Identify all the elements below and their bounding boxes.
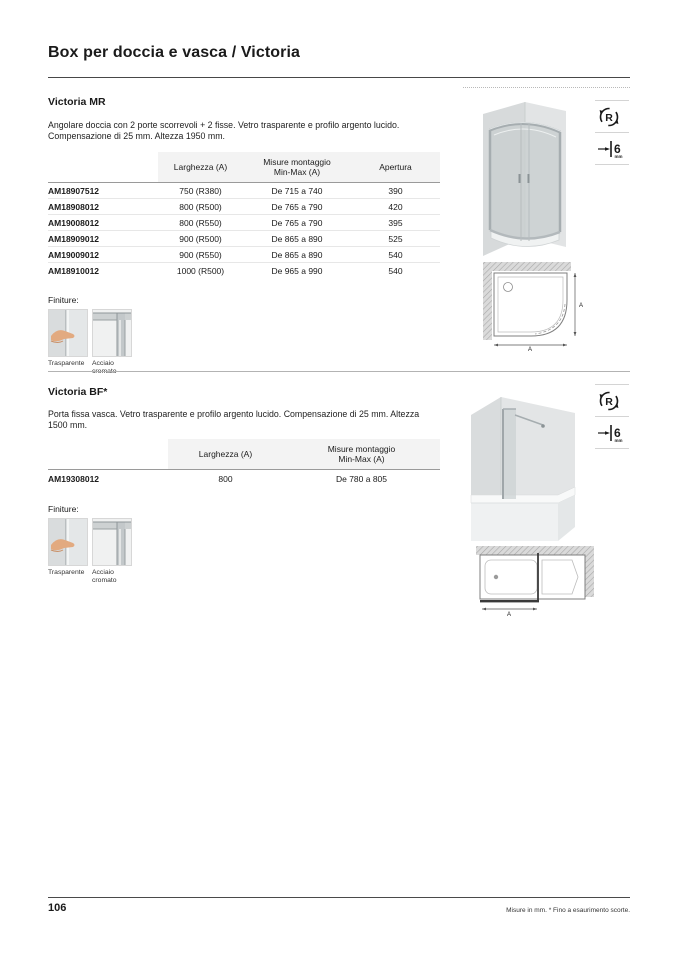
finish-item-trasparente: Trasparente	[48, 309, 88, 375]
cell-larghezza: 900 (R550)	[158, 250, 243, 260]
page-number: 106	[48, 902, 66, 914]
product-photo-victoria-mr	[463, 90, 585, 261]
title-divider	[48, 77, 630, 78]
cell-misure: De 780 a 805	[283, 474, 440, 484]
dim-label-width: A	[528, 347, 532, 352]
reversible-icon: R	[597, 389, 621, 413]
finishes-block: Finiture: Trasparente	[48, 504, 440, 584]
section-heading: Victoria MR	[48, 96, 440, 108]
cell-apertura: 525	[351, 234, 440, 244]
cell-product-code: AM19009012	[48, 250, 158, 260]
reversible-badge: R	[595, 101, 631, 132]
finishes-block: Finiture: Trasparente	[48, 295, 440, 375]
footer-divider	[48, 897, 630, 898]
schematic-bathtub-top-view: A	[468, 544, 602, 623]
header-cell-larghezza: Larghezza (A)	[158, 152, 243, 182]
reversible-badge: R	[595, 385, 631, 416]
table-row: AM19308012 800 De 780 a 805	[48, 470, 440, 487]
finish-swatch-trasparente-image	[48, 309, 88, 357]
glass-thickness-icon: 6 mm	[597, 137, 629, 161]
products-table-victoria-mr: Larghezza (A) Misure montaggio Min-Max (…	[48, 152, 440, 278]
cell-product-code: AM19008012	[48, 218, 158, 228]
header-cell-apertura: Apertura	[351, 152, 440, 182]
cell-apertura: 390	[351, 186, 440, 196]
finish-name: Trasparente	[48, 360, 88, 368]
cell-product-code: AM18909012	[48, 234, 158, 244]
table-row: AM18908012 800 (R500) De 765 a 790 420	[48, 199, 440, 215]
catalog-page: Box per doccia e vasca / Victoria Victor…	[0, 0, 678, 959]
feature-badges-victoria-mr: R 6 mm	[595, 100, 631, 165]
svg-text:R: R	[605, 395, 613, 407]
table-row: AM19008012 800 (R550) De 765 a 790 395	[48, 215, 440, 231]
products-table-victoria-bf: Larghezza (A) Misure montaggio Min-Max (…	[48, 439, 440, 487]
table-row: AM19009012 900 (R550) De 865 a 890 540	[48, 247, 440, 263]
cell-product-code: AM18908012	[48, 202, 158, 212]
cell-apertura: 540	[351, 266, 440, 276]
section-divider	[48, 371, 630, 372]
table-header-row: Larghezza (A) Misure montaggio Min-Max (…	[48, 439, 440, 469]
cell-larghezza: 750 (R380)	[158, 186, 243, 196]
cell-apertura: 420	[351, 202, 440, 212]
table-row: AM18909012 900 (R500) De 865 a 890 525	[48, 231, 440, 247]
finish-item-acciaio-cromato: Acciaio cromato	[92, 518, 132, 584]
footer-note: Misure in mm. * Fino a esaurimento scort…	[506, 907, 630, 914]
section-description-line1: Porta fissa vasca. Vetro trasparente e p…	[48, 409, 440, 431]
table-row: AM18907512 750 (R380) De 715 a 740 390	[48, 183, 440, 199]
svg-text:mm: mm	[615, 438, 623, 443]
cell-misure: De 765 a 790	[243, 218, 351, 228]
section-victoria-mr: Victoria MR Angolare doccia con 2 porte …	[48, 96, 440, 375]
badge-divider	[595, 164, 629, 165]
table-row: AM18910012 1000 (R500) De 965 a 990 540	[48, 263, 440, 278]
table-header-row: Larghezza (A) Misure montaggio Min-Max (…	[48, 152, 440, 182]
schematic-tray-top-view: A A	[481, 260, 585, 357]
cell-misure: De 865 a 890	[243, 234, 351, 244]
page-title: Box per doccia e vasca / Victoria	[48, 44, 630, 62]
section-description-line1: Angolare doccia con 2 porte scorrevoli +…	[48, 120, 440, 131]
glass-thickness-icon: 6 mm	[597, 421, 629, 445]
dim-label-height: A	[579, 303, 583, 309]
cell-misure: De 715 a 740	[243, 186, 351, 196]
section-heading: Victoria BF*	[48, 386, 440, 398]
finish-item-trasparente: Trasparente	[48, 518, 88, 584]
section-victoria-bf: Victoria BF* Porta fissa vasca. Vetro tr…	[48, 386, 440, 584]
finish-swatch-trasparente-image	[48, 518, 88, 566]
cell-apertura: 395	[351, 218, 440, 228]
glass-thickness-badge: 6 mm	[595, 417, 631, 448]
product-photo-victoria-bf	[463, 385, 585, 550]
cell-apertura: 540	[351, 250, 440, 260]
badge-divider	[595, 448, 629, 449]
finish-swatch-acciaio-image	[92, 518, 132, 566]
cell-larghezza: 800 (R550)	[158, 218, 243, 228]
svg-text:R: R	[605, 111, 613, 123]
cell-product-code: AM18910012	[48, 266, 158, 276]
cell-misure: De 765 a 790	[243, 202, 351, 212]
finish-name: Trasparente	[48, 569, 88, 577]
cell-larghezza: 800 (R500)	[158, 202, 243, 212]
finish-name: Acciaio cromato	[92, 569, 132, 584]
section-description-line2: Compensazione di 25 mm. Altezza 1950 mm.	[48, 131, 440, 142]
cell-product-code: AM19308012	[48, 474, 168, 484]
finish-name: Acciaio cromato	[92, 360, 132, 375]
cell-larghezza: 800	[168, 474, 283, 484]
reversible-icon: R	[597, 105, 621, 129]
header-cell-larghezza: Larghezza (A)	[168, 439, 283, 469]
finishes-label: Finiture:	[48, 295, 440, 305]
finish-swatch-acciaio-image	[92, 309, 132, 357]
finishes-label: Finiture:	[48, 504, 440, 514]
feature-badges-victoria-bf: R 6 mm	[595, 384, 631, 449]
finish-item-acciaio-cromato: Acciaio cromato	[92, 309, 132, 375]
header-cell-misure: Misure montaggio Min-Max (A)	[283, 439, 440, 469]
cell-misure: De 965 a 990	[243, 266, 351, 276]
right-column-dotted-divider	[463, 87, 630, 88]
cell-larghezza: 1000 (R500)	[158, 266, 243, 276]
cell-misure: De 865 a 890	[243, 250, 351, 260]
dim-label-width: A	[507, 612, 511, 618]
cell-product-code: AM18907512	[48, 186, 158, 196]
cell-larghezza: 900 (R500)	[158, 234, 243, 244]
glass-thickness-badge: 6 mm	[595, 133, 631, 164]
header-cell-misure: Misure montaggio Min-Max (A)	[243, 152, 351, 182]
svg-text:mm: mm	[615, 154, 623, 159]
